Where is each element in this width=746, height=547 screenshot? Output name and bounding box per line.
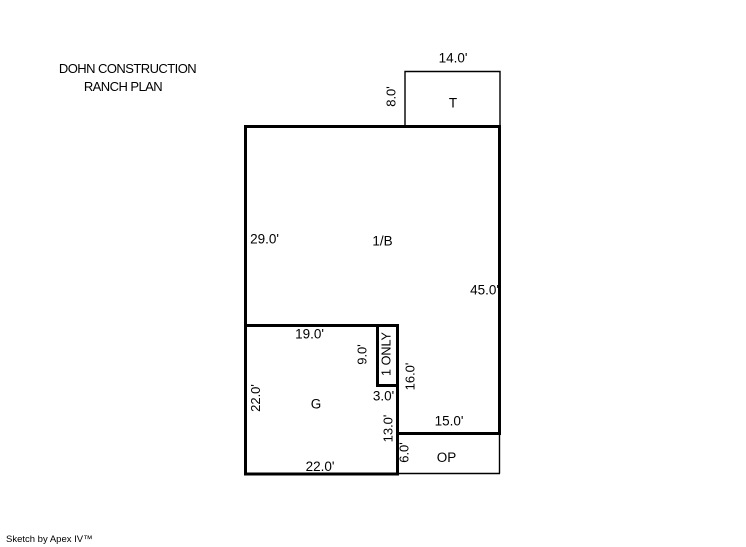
- svg-text:Sketch by Apex IV™: Sketch by Apex IV™: [6, 534, 93, 545]
- svg-text:29.0': 29.0': [250, 232, 279, 247]
- svg-text:8.0': 8.0': [384, 86, 399, 107]
- svg-text:3.0': 3.0': [373, 389, 394, 404]
- svg-text:DOHN CONSTRUCTION: DOHN CONSTRUCTION: [59, 61, 196, 76]
- svg-text:22.0': 22.0': [248, 384, 263, 412]
- svg-text:OP: OP: [437, 450, 457, 465]
- svg-text:19.0': 19.0': [295, 327, 324, 342]
- svg-text:1/B: 1/B: [372, 234, 392, 249]
- svg-text:6.0': 6.0': [397, 442, 412, 463]
- svg-text:T: T: [449, 96, 457, 111]
- svg-text:45.0': 45.0': [470, 283, 499, 298]
- svg-text:22.0': 22.0': [306, 459, 335, 474]
- svg-text:1 ONLY: 1 ONLY: [380, 331, 394, 375]
- svg-text:14.0': 14.0': [439, 51, 468, 66]
- svg-text:G: G: [311, 397, 322, 412]
- svg-text:RANCH PLAN: RANCH PLAN: [84, 79, 162, 94]
- svg-text:13.0': 13.0': [381, 415, 396, 443]
- svg-text:15.0': 15.0': [435, 414, 464, 429]
- svg-text:16.0': 16.0': [403, 363, 418, 391]
- svg-text:9.0': 9.0': [355, 344, 370, 365]
